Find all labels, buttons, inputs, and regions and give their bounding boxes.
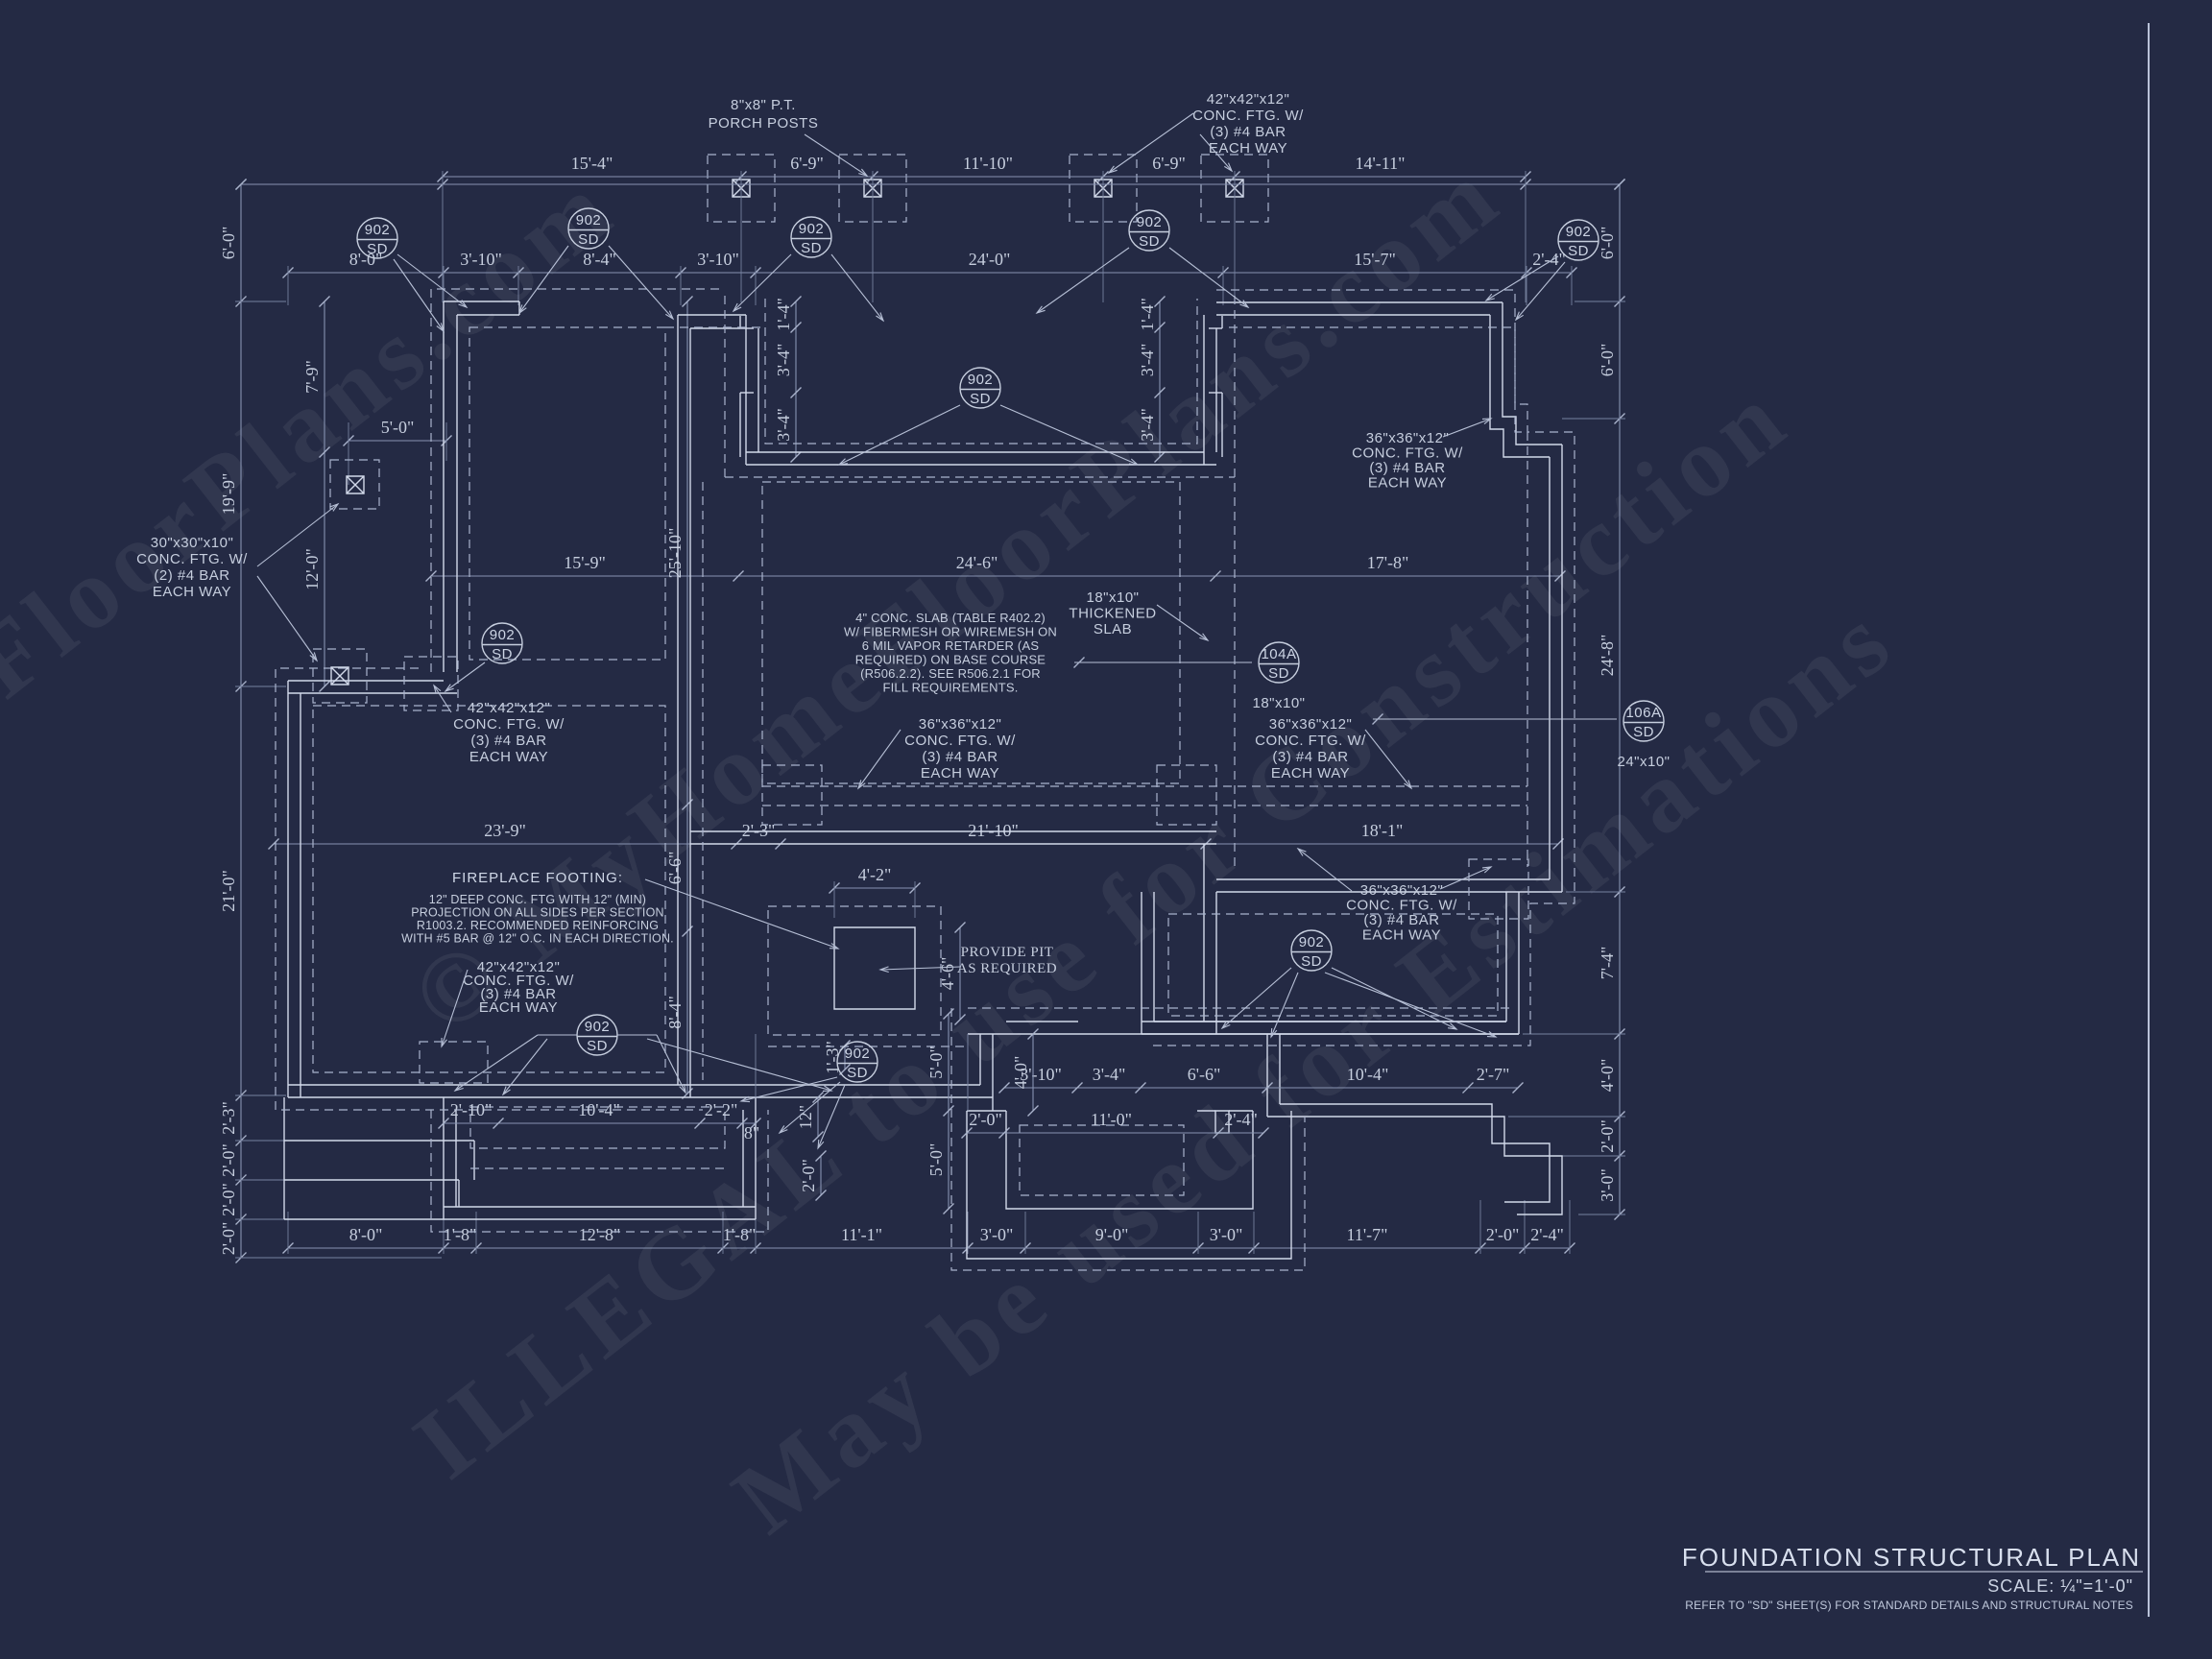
svg-text:(3) #4 BAR: (3) #4 BAR <box>470 733 546 749</box>
svg-text:2'-2": 2'-2" <box>705 1100 738 1119</box>
svg-text:3'-4": 3'-4" <box>1138 344 1157 377</box>
svg-text:15'-7": 15'-7" <box>1354 250 1396 269</box>
svg-text:902: 902 <box>1566 224 1592 240</box>
svg-text:12" DEEP CONC. FTG WITH 12" (M: 12" DEEP CONC. FTG WITH 12" (MIN) <box>429 893 646 906</box>
svg-text:CONC. FTG. W/: CONC. FTG. W/ <box>1352 445 1463 462</box>
svg-text:2'-3": 2'-3" <box>742 821 776 840</box>
svg-text:4" CONC. SLAB (TABLE R402.2): 4" CONC. SLAB (TABLE R402.2) <box>855 611 1046 625</box>
svg-text:6'-9": 6'-9" <box>790 154 824 173</box>
svg-text:SD: SD <box>847 1065 868 1081</box>
svg-text:4'-0": 4'-0" <box>1011 1056 1030 1090</box>
svg-text:EACH WAY: EACH WAY <box>1362 927 1441 944</box>
svg-text:902: 902 <box>968 372 994 388</box>
svg-text:SD: SD <box>587 1038 608 1054</box>
svg-text:SCALE: ¼"=1'-0": SCALE: ¼"=1'-0" <box>1987 1576 2133 1596</box>
svg-text:SD: SD <box>1268 665 1289 682</box>
svg-text:902: 902 <box>585 1019 611 1035</box>
svg-text:PROJECTION ON ALL SIDES PER SE: PROJECTION ON ALL SIDES PER SECTION <box>411 906 664 920</box>
svg-text:21'-0": 21'-0" <box>219 870 238 912</box>
svg-text:14'-11": 14'-11" <box>1356 154 1406 173</box>
svg-text:SD: SD <box>970 391 991 407</box>
svg-text:36"x36"x12": 36"x36"x12" <box>1366 430 1450 446</box>
svg-text:1'-8": 1'-8" <box>444 1225 477 1244</box>
svg-text:3'-0": 3'-0" <box>980 1225 1014 1244</box>
svg-text:12'-8": 12'-8" <box>579 1225 621 1244</box>
svg-text:25'-10": 25'-10" <box>665 528 685 579</box>
svg-text:PROVIDE PIT: PROVIDE PIT <box>961 945 1054 960</box>
svg-text:2'-0": 2'-0" <box>969 1110 1002 1129</box>
svg-text:SD: SD <box>1568 243 1589 259</box>
svg-text:SD: SD <box>578 231 599 248</box>
svg-text:36"x36"x12": 36"x36"x12" <box>1360 882 1444 899</box>
svg-text:CONC. FTG. W/: CONC. FTG. W/ <box>136 551 248 567</box>
svg-text:5'-0": 5'-0" <box>926 1143 946 1177</box>
svg-text:6'-6": 6'-6" <box>1188 1065 1221 1084</box>
svg-text:18"x10": 18"x10" <box>1252 695 1305 711</box>
svg-text:R1003.2. RECOMMENDED REINFORC: R1003.2. RECOMMENDED REINFORCING <box>417 919 659 932</box>
svg-text:SLAB: SLAB <box>1094 621 1132 637</box>
svg-text:(R506.2.2). SEE R506.2.1 FOR: (R506.2.2). SEE R506.2.1 FOR <box>860 666 1041 681</box>
svg-text:24'-8": 24'-8" <box>1598 635 1617 677</box>
svg-text:EACH WAY: EACH WAY <box>921 765 999 781</box>
svg-text:21'-10": 21'-10" <box>968 821 1019 840</box>
svg-text:2'-3": 2'-3" <box>219 1101 238 1135</box>
svg-text:18'-1": 18'-1" <box>1361 821 1404 840</box>
svg-text:6'-0": 6'-0" <box>1598 344 1617 377</box>
svg-text:10'-4": 10'-4" <box>1347 1065 1389 1084</box>
svg-text:12'-0": 12'-0" <box>302 548 322 590</box>
svg-text:3'-0": 3'-0" <box>1210 1225 1243 1244</box>
svg-text:3'-4": 3'-4" <box>774 408 793 442</box>
svg-text:1'-8": 1'-8" <box>723 1225 757 1244</box>
svg-text:9'-0": 9'-0" <box>1095 1225 1129 1244</box>
svg-text:FIREPLACE FOOTING:: FIREPLACE FOOTING: <box>452 870 623 886</box>
svg-text:3'-0": 3'-0" <box>1598 1168 1617 1202</box>
svg-text:SD: SD <box>801 240 822 256</box>
svg-text:FOUNDATION STRUCTURAL PLAN: FOUNDATION STRUCTURAL PLAN <box>1682 1543 2141 1572</box>
svg-text:30"x30"x10": 30"x30"x10" <box>151 535 234 551</box>
svg-text:REFER TO "SD" SHEET(S) FOR STA: REFER TO "SD" SHEET(S) FOR STANDARD DETA… <box>1685 1599 2133 1612</box>
svg-text:2'-0": 2'-0" <box>219 1183 238 1216</box>
svg-text:104A: 104A <box>1261 646 1296 662</box>
svg-text:(2) #4 BAR: (2) #4 BAR <box>154 567 229 584</box>
svg-text:PORCH POSTS: PORCH POSTS <box>709 115 819 132</box>
svg-text:23'-9": 23'-9" <box>484 821 526 840</box>
svg-text:6'-9": 6'-9" <box>1152 154 1186 173</box>
svg-text:SD: SD <box>1633 724 1654 740</box>
svg-text:24'-0": 24'-0" <box>969 250 1011 269</box>
svg-text:8'-4": 8'-4" <box>665 996 685 1029</box>
svg-text:1'-4": 1'-4" <box>774 298 793 331</box>
svg-text:2'-4": 2'-4" <box>1224 1110 1258 1129</box>
svg-text:4'-6": 4'-6" <box>938 957 957 991</box>
svg-text:EACH WAY: EACH WAY <box>1209 140 1287 156</box>
svg-text:36"x36"x12": 36"x36"x12" <box>919 716 1002 733</box>
svg-text:24"x10": 24"x10" <box>1617 754 1670 770</box>
svg-text:36"x36"x12": 36"x36"x12" <box>1269 716 1353 733</box>
svg-text:2'-0": 2'-0" <box>219 1222 238 1256</box>
svg-text:902: 902 <box>1299 934 1325 950</box>
svg-text:6 MIL VAPOR RETARDER (AS: 6 MIL VAPOR RETARDER (AS <box>862 638 1040 653</box>
svg-text:THICKENED: THICKENED <box>1069 606 1156 622</box>
svg-text:902: 902 <box>490 627 516 643</box>
svg-text:(3) #4 BAR: (3) #4 BAR <box>922 749 998 765</box>
svg-text:CONC. FTG. W/: CONC. FTG. W/ <box>904 733 1016 749</box>
svg-text:19'-9": 19'-9" <box>219 473 238 516</box>
svg-text:1'-4": 1'-4" <box>1138 298 1157 331</box>
svg-text:EACH WAY: EACH WAY <box>469 749 548 765</box>
svg-text:CONC. FTG. W/: CONC. FTG. W/ <box>1346 898 1457 914</box>
svg-text:7'-4": 7'-4" <box>1598 947 1617 980</box>
svg-text:CONC. FTG. W/: CONC. FTG. W/ <box>1255 733 1366 749</box>
svg-text:2'-0": 2'-0" <box>219 1143 238 1177</box>
svg-text:18"x10": 18"x10" <box>1086 589 1139 606</box>
svg-text:902: 902 <box>799 221 825 237</box>
svg-text:2'-4": 2'-4" <box>1530 1225 1564 1244</box>
svg-text:SD: SD <box>492 646 513 662</box>
svg-text:3'-10": 3'-10" <box>697 250 739 269</box>
svg-text:WITH #5 BAR @ 12" O.C. IN EACH: WITH #5 BAR @ 12" O.C. IN EACH DIRECTION… <box>401 932 674 946</box>
svg-text:8'-0": 8'-0" <box>349 1225 383 1244</box>
svg-text:2'-0": 2'-0" <box>1486 1225 1520 1244</box>
svg-text:6'-0": 6'-0" <box>1598 227 1617 260</box>
svg-text:8": 8" <box>744 1123 759 1142</box>
svg-text:2'-10": 2'-10" <box>450 1100 493 1119</box>
svg-text:902: 902 <box>576 212 602 228</box>
svg-text:902: 902 <box>365 222 391 238</box>
svg-text:(3) #4 BAR: (3) #4 BAR <box>1272 749 1348 765</box>
svg-text:3'-10": 3'-10" <box>460 250 502 269</box>
svg-text:17'-8": 17'-8" <box>1367 553 1409 572</box>
svg-text:3'-4": 3'-4" <box>1093 1065 1126 1084</box>
svg-text:AS REQUIRED: AS REQUIRED <box>957 961 1057 976</box>
svg-text:EACH WAY: EACH WAY <box>153 584 231 600</box>
svg-text:902: 902 <box>1137 214 1163 230</box>
svg-text:902: 902 <box>845 1046 871 1062</box>
svg-text:CONC. FTG. W/: CONC. FTG. W/ <box>1192 108 1304 124</box>
svg-text:(3) #4 BAR: (3) #4 BAR <box>1369 460 1445 476</box>
svg-text:11'-1": 11'-1" <box>841 1225 882 1244</box>
svg-text:(3) #4 BAR: (3) #4 BAR <box>1363 912 1439 928</box>
svg-text:3'-4": 3'-4" <box>1138 408 1157 442</box>
svg-text:11'-10": 11'-10" <box>963 154 1013 173</box>
svg-text:106A: 106A <box>1625 705 1661 721</box>
svg-text:5'-0": 5'-0" <box>926 1046 946 1079</box>
svg-text:REQUIRED) ON BASE COURSE: REQUIRED) ON BASE COURSE <box>855 653 1046 667</box>
svg-text:4'-2": 4'-2" <box>858 865 892 884</box>
svg-text:2'-0": 2'-0" <box>799 1159 818 1192</box>
svg-text:W/ FIBERMESH OR WIREMESH ON: W/ FIBERMESH OR WIREMESH ON <box>844 625 1057 639</box>
svg-text:SD: SD <box>367 241 388 257</box>
svg-text:8'-4": 8'-4" <box>583 250 616 269</box>
svg-text:2'-4": 2'-4" <box>1532 250 1566 269</box>
svg-text:CONC. FTG. W/: CONC. FTG. W/ <box>453 716 565 733</box>
svg-text:11'-0": 11'-0" <box>1091 1110 1132 1129</box>
svg-text:3'-4": 3'-4" <box>774 344 793 377</box>
svg-text:7'-9": 7'-9" <box>302 360 322 394</box>
svg-text:2'-7": 2'-7" <box>1477 1065 1510 1084</box>
svg-text:42"x42"x12": 42"x42"x12" <box>468 700 551 716</box>
svg-text:4'-0": 4'-0" <box>1598 1059 1617 1093</box>
svg-text:EACH WAY: EACH WAY <box>479 999 558 1016</box>
svg-text:6'-6": 6'-6" <box>665 852 685 885</box>
svg-text:15'-4": 15'-4" <box>571 154 613 173</box>
svg-text:SD: SD <box>1301 953 1322 970</box>
svg-text:10'-4": 10'-4" <box>578 1100 620 1119</box>
svg-text:5'-0": 5'-0" <box>381 418 415 437</box>
svg-text:(3) #4 BAR: (3) #4 BAR <box>1210 124 1286 140</box>
svg-text:6'-0": 6'-0" <box>219 227 238 260</box>
svg-text:42"x42"x12": 42"x42"x12" <box>1207 91 1290 108</box>
svg-text:15'-9": 15'-9" <box>564 553 606 572</box>
svg-text:24'-6": 24'-6" <box>956 553 998 572</box>
svg-text:EACH WAY: EACH WAY <box>1368 475 1447 492</box>
svg-text:8"x8" P.T.: 8"x8" P.T. <box>731 97 796 113</box>
svg-text:11'-7": 11'-7" <box>1347 1225 1388 1244</box>
svg-text:SD: SD <box>1139 233 1160 250</box>
svg-text:EACH WAY: EACH WAY <box>1271 765 1350 781</box>
svg-text:FILL REQUIREMENTS.: FILL REQUIREMENTS. <box>882 681 1018 695</box>
svg-text:2'-0": 2'-0" <box>1598 1119 1617 1153</box>
